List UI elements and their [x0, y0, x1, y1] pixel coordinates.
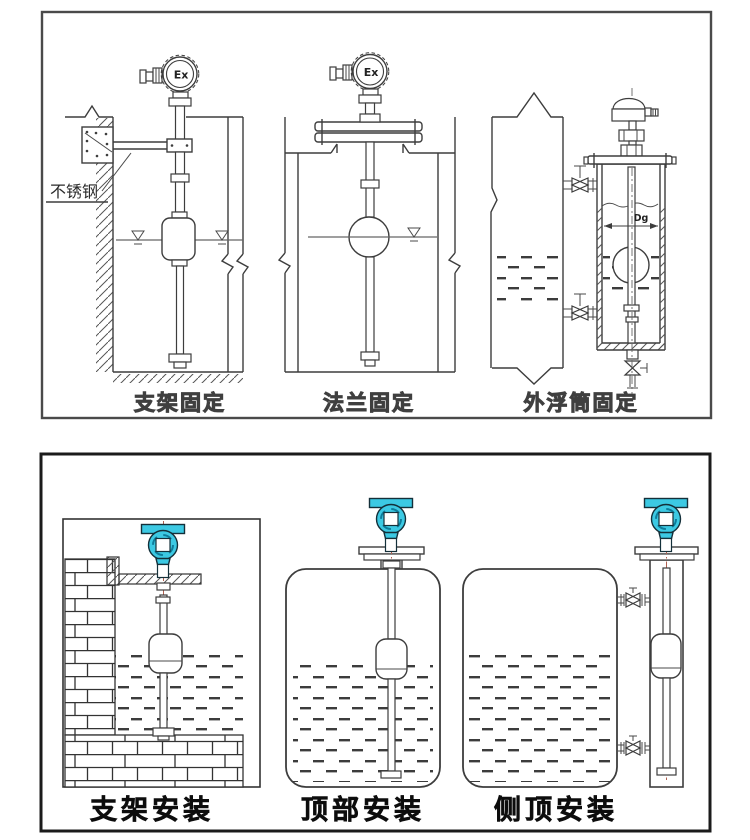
rod-end-weight — [381, 771, 401, 778]
brick-floor — [65, 735, 243, 787]
float-body — [651, 634, 681, 678]
caption-top-installation: 顶部安装 — [301, 794, 425, 826]
rod-end-weight — [657, 768, 676, 775]
liquid — [469, 655, 611, 782]
wall-plate — [107, 557, 119, 585]
rod-end-weight — [153, 728, 174, 736]
guide-rod — [663, 568, 670, 634]
guide-rod — [388, 568, 395, 639]
caption-side-top-installation: 侧顶安装 — [494, 795, 618, 826]
float-body — [149, 634, 182, 673]
liquid — [293, 659, 433, 782]
installation-diagram-sheet: 不锈钢 Ex 支架固定 — [0, 0, 750, 840]
bottom-panel-installation-methods: 支架安装 顶部安装 — [0, 0, 750, 840]
float-body — [376, 639, 407, 679]
caption-bracket-installation: 支架安装 — [90, 795, 214, 826]
